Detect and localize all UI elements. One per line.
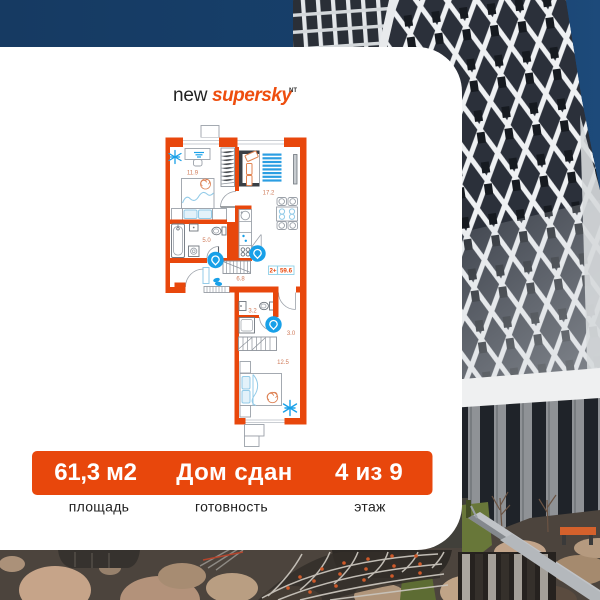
- svg-text:2+: 2+: [269, 268, 276, 275]
- svg-text:этаж: этаж: [354, 499, 386, 515]
- svg-text:Дом сдан: Дом сдан: [176, 459, 293, 486]
- svg-text:6.8: 6.8: [236, 277, 245, 283]
- svg-text:59.6: 59.6: [280, 268, 293, 275]
- svg-text:площадь: площадь: [69, 499, 130, 515]
- svg-text:61,3 м2: 61,3 м2: [54, 459, 136, 486]
- svg-text:11.9: 11.9: [187, 171, 199, 177]
- svg-text:5.0: 5.0: [202, 238, 211, 244]
- svg-text:3.0: 3.0: [287, 331, 296, 337]
- svg-text:3.2: 3.2: [248, 309, 257, 315]
- svg-text:supersky: supersky: [212, 85, 293, 106]
- svg-text:4 из 9: 4 из 9: [335, 459, 403, 486]
- svg-text:12.5: 12.5: [277, 360, 289, 366]
- svg-text:NT: NT: [289, 88, 297, 94]
- svg-text:new: new: [173, 85, 208, 106]
- svg-text:готовность: готовность: [195, 499, 268, 515]
- svg-text:17.2: 17.2: [263, 191, 275, 197]
